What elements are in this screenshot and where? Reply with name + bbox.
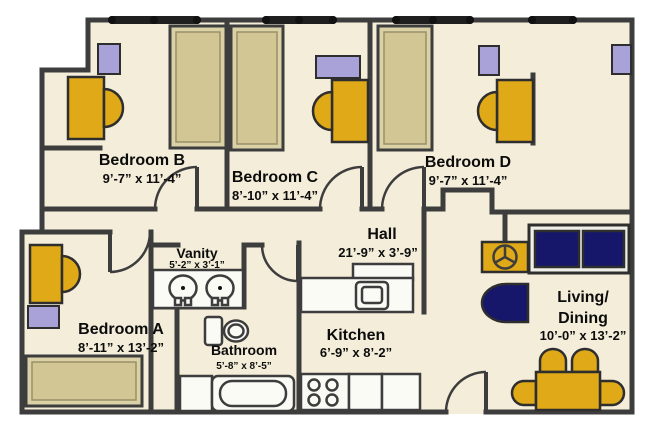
sink-faucet xyxy=(175,298,181,305)
room-dims: 21’-9” x 3’-9” xyxy=(338,245,418,260)
window-joint xyxy=(569,16,577,24)
room-label-vanity: Vanity 5’-2” x 3’-1” xyxy=(169,245,225,271)
mattress xyxy=(384,32,426,144)
room-label-bathroom: Bathroom 5’-8” x 8’-5” xyxy=(211,342,277,372)
room-name: Kitchen xyxy=(327,327,386,344)
room-dims: 6’-9” x 8’-2” xyxy=(320,345,392,360)
window-joint xyxy=(392,16,400,24)
desk xyxy=(30,245,62,303)
sink-faucet xyxy=(185,298,191,305)
window-joint xyxy=(528,16,536,24)
room-name-line1: Living/ xyxy=(557,289,609,306)
room-name-line2: Dining xyxy=(558,310,608,327)
counter-cabinet xyxy=(382,374,420,410)
room-dims: 5’-8” x 8’-5” xyxy=(216,361,272,372)
vanity-fixtures xyxy=(153,270,243,308)
room-dims: 8’-10” x 11’-4” xyxy=(232,188,318,203)
nightstand xyxy=(28,306,59,328)
toilet-tank xyxy=(205,317,222,345)
room-name: Bedroom B xyxy=(99,152,185,169)
nightstand xyxy=(612,45,631,74)
room-dims: 5’-2” x 3’-1” xyxy=(169,260,225,271)
dining-chair xyxy=(572,349,598,372)
nightstand xyxy=(479,46,499,75)
nightstand xyxy=(316,56,360,78)
room-dims: 10’-0” x 13’-2” xyxy=(540,328,627,343)
room-name: Hall xyxy=(367,226,396,243)
room-name: Bedroom A xyxy=(78,321,164,338)
desk xyxy=(68,77,104,139)
room-label-kitchen: Kitchen 6’-9” x 8’-2” xyxy=(320,327,392,360)
sofa-cushion xyxy=(535,231,579,267)
dining-chair xyxy=(512,381,536,405)
desk xyxy=(332,80,368,142)
mattress xyxy=(32,362,136,400)
sink-drain xyxy=(181,286,185,290)
stove xyxy=(301,374,349,410)
room-name: Bathroom xyxy=(211,342,277,358)
room-name: Bedroom C xyxy=(232,169,319,186)
window-joint xyxy=(295,16,303,24)
window-joint xyxy=(108,16,116,24)
armchair xyxy=(482,284,528,322)
dining-chair xyxy=(600,381,624,405)
window-joint xyxy=(329,16,337,24)
window-joint xyxy=(262,16,270,24)
mattress xyxy=(237,32,277,144)
window-joint xyxy=(150,16,158,24)
dining-chair xyxy=(540,349,566,372)
counter-cabinet xyxy=(349,374,382,410)
room-name: Vanity xyxy=(176,245,217,261)
bathroom-cabinet xyxy=(180,376,212,411)
window-joint xyxy=(466,16,474,24)
sofa-cushion xyxy=(583,231,624,267)
kitchen-sink-basin xyxy=(362,287,382,303)
mattress xyxy=(176,32,220,142)
sink-drain xyxy=(218,286,222,290)
desk xyxy=(497,80,533,142)
floor-plan-svg: Bedroom B 9’-7” x 11’-4” Bedroom C 8’-10… xyxy=(0,0,646,436)
window-joint xyxy=(429,16,437,24)
floor-plan: Bedroom B 9’-7” x 11’-4” Bedroom C 8’-10… xyxy=(0,0,646,436)
dining-table xyxy=(536,372,600,410)
room-dims: 9’-7” x 11’-4” xyxy=(429,173,508,188)
nightstand xyxy=(98,44,120,74)
sink-faucet xyxy=(222,298,228,305)
room-name: Bedroom D xyxy=(425,154,511,171)
room-dims: 9’-7” x 11’-4” xyxy=(103,171,182,186)
sink-faucet xyxy=(212,298,218,305)
window-joint xyxy=(193,16,201,24)
room-dims: 8’-11” x 13’-2” xyxy=(78,340,164,355)
